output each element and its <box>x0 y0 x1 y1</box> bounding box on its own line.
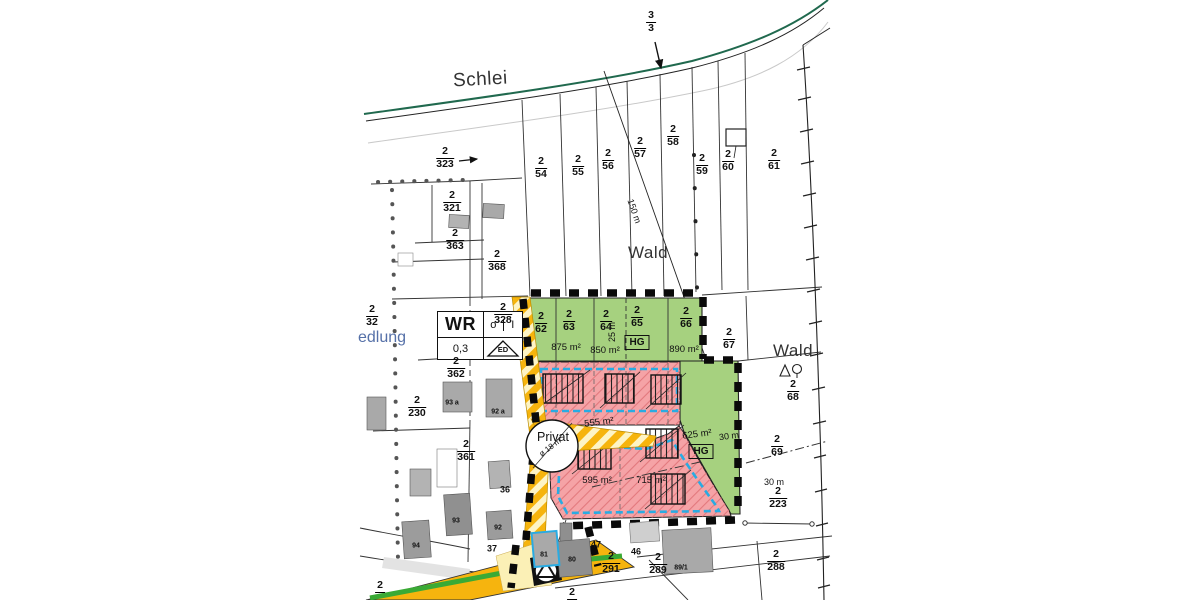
arrow-2-323 <box>459 159 477 161</box>
fence-dots-north <box>378 180 464 182</box>
parcel-label-2-57: 257 <box>634 136 646 161</box>
house-number-80: 80 <box>568 557 576 564</box>
parcel-label-cut-bottom-mid: 2 <box>567 587 577 600</box>
parcel-label-2-361: 2361 <box>457 439 475 464</box>
fence-cross-ticks <box>797 67 830 588</box>
parcel-label-2-55: 255 <box>572 154 584 179</box>
parcel-label-2-323: 2323 <box>436 146 454 171</box>
area-890: 890 m² <box>669 345 699 355</box>
house-number-93a: 93 a <box>445 400 459 407</box>
parcel-label-2-68: 268 <box>787 379 799 404</box>
conifer-tree-symbol <box>780 365 790 376</box>
house-type-label: ED <box>498 345 508 354</box>
arrow-3-3 <box>655 42 661 68</box>
parcel-label-2-223: 2223 <box>769 486 787 511</box>
parcel-label-2-61: 261 <box>768 148 780 173</box>
parcel-label-2-60: 260 <box>722 149 734 174</box>
house-number-36: 36 <box>500 486 510 495</box>
parcel-label-2-288: 2288 <box>767 549 785 574</box>
parcel-label-2-289: 2289 <box>649 552 667 577</box>
parcel-label-2-59: 259 <box>696 153 708 178</box>
house-number-46: 46 <box>631 548 641 557</box>
parcel-label-2-64: 264 <box>600 309 612 334</box>
parcel-label-2-230: 2230 <box>408 395 426 420</box>
hut-symbol <box>726 129 746 146</box>
house-number-92: 92 <box>494 525 502 532</box>
parcel-label-2-328: 2328 <box>494 302 512 327</box>
boundary-point <box>810 522 814 526</box>
house-number-81: 81 <box>540 552 548 559</box>
parcel-label-2-63: 263 <box>563 309 575 334</box>
area-595: 595 m² <box>582 476 612 486</box>
boundary-point <box>743 521 747 525</box>
parcel-label-3-3: 33 <box>646 10 656 35</box>
parcel-line-223-288 <box>745 523 812 524</box>
parcel-label-2-368: 2368 <box>488 249 506 274</box>
area-715: 715 m² <box>636 476 666 486</box>
wald-label-upper: Wald <box>628 244 668 261</box>
parcel-label-2-69: 269 <box>771 434 783 459</box>
parcel-label-2-54: 254 <box>535 156 547 181</box>
fence-dots-west <box>392 190 398 560</box>
parcel-label-2-362: 2362 <box>447 356 465 381</box>
house-number-47: 47 <box>591 541 601 550</box>
deciduous-tree-symbol <box>793 365 802 374</box>
area-850: 850 m² <box>590 346 620 356</box>
house-number-93: 93 <box>452 518 460 525</box>
hg-box-upper: HG <box>625 335 650 350</box>
house-number-94: 94 <box>412 543 420 550</box>
parcel-label-2-32: 232 <box>366 304 378 329</box>
cadastral-map: Schlei Wald Wald edlung 150 m 25 m 30 m … <box>0 0 1200 600</box>
parcel-label-2-62: 262 <box>535 311 547 336</box>
dashdot-parcel-line-right <box>746 441 828 463</box>
parcel-label-2-66: 266 <box>680 306 692 331</box>
parcel-label-2-56: 256 <box>602 148 614 173</box>
parcel-label-2-58: 258 <box>667 124 679 149</box>
parcel-label-2-67: 267 <box>723 327 735 352</box>
zone-type-label: WR <box>438 312 484 338</box>
wald-label-right: Wald <box>773 342 813 359</box>
hg-box-lower: HG <box>689 444 714 459</box>
map-geometry <box>0 0 1200 600</box>
parcel-label-2-65: 265 <box>631 305 643 330</box>
siedlung-label-partial: edlung <box>358 330 406 346</box>
area-875: 875 m² <box>551 343 581 353</box>
parcel-label-2-321: 2321 <box>443 190 461 215</box>
parcel-label-cut-bottom-left: 2 <box>375 580 385 593</box>
house-type-cell: ED <box>484 338 522 359</box>
waterway-label-schlei: Schlei <box>453 69 509 91</box>
house-number-92a: 92 a <box>491 409 505 416</box>
parcel-label-2-363: 2363 <box>446 228 464 253</box>
house-number-89-1: 89/1 <box>674 565 688 572</box>
building-81-highlighted <box>532 531 560 567</box>
parcel-label-2-291: 2291 <box>602 551 620 576</box>
house-number-37: 37 <box>487 545 497 554</box>
